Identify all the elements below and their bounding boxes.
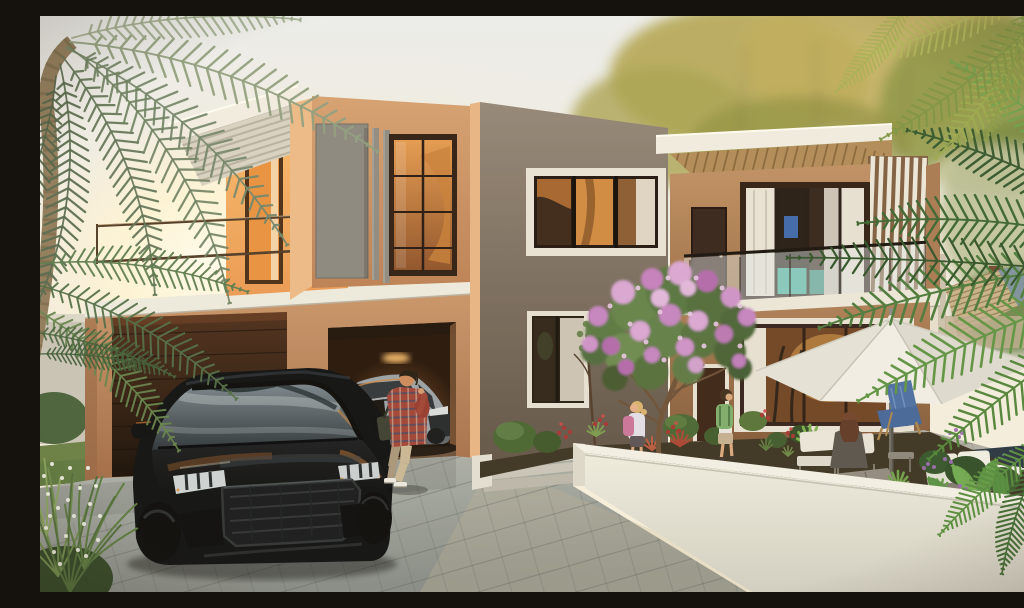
vignette <box>40 16 1024 592</box>
scene-canvas <box>40 16 1024 592</box>
architectural-render: Modern two-story tan stucco villa at sun… <box>40 16 1024 592</box>
